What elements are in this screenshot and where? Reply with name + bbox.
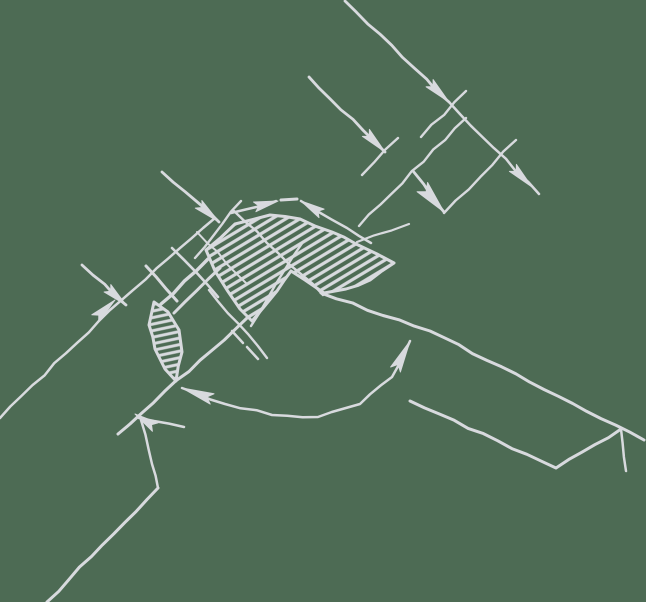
lower-right-flange [410,401,621,468]
arrowhead-apex-right [301,201,324,218]
plate-edge-right [321,293,644,440]
root-dash-2 [247,347,258,359]
root-lens-hatched [149,302,182,381]
apex-ext-tick-right [357,224,409,242]
apex-gap-bar [281,199,297,200]
drawing-canvas [0,0,646,602]
weld-joint-technical-drawing [0,0,646,602]
lower-right-drop [621,429,626,471]
lower-left-edge [47,488,158,602]
arrowhead-upper-3 [417,183,444,213]
arrowhead-arc-left [182,388,214,404]
ext-line-upper-right [444,140,516,213]
weld-bead-hatched [206,215,394,321]
arrowhead-ext-left [92,300,115,322]
leader-stem [141,420,158,488]
ext-tick-upper-2 [362,138,398,175]
step-tick-1 [146,266,177,301]
step-line-diag-1 [161,259,208,304]
angle-dim-arc [182,341,410,417]
arrowhead-arc-right [391,341,410,372]
arrowhead-leader [135,414,158,431]
